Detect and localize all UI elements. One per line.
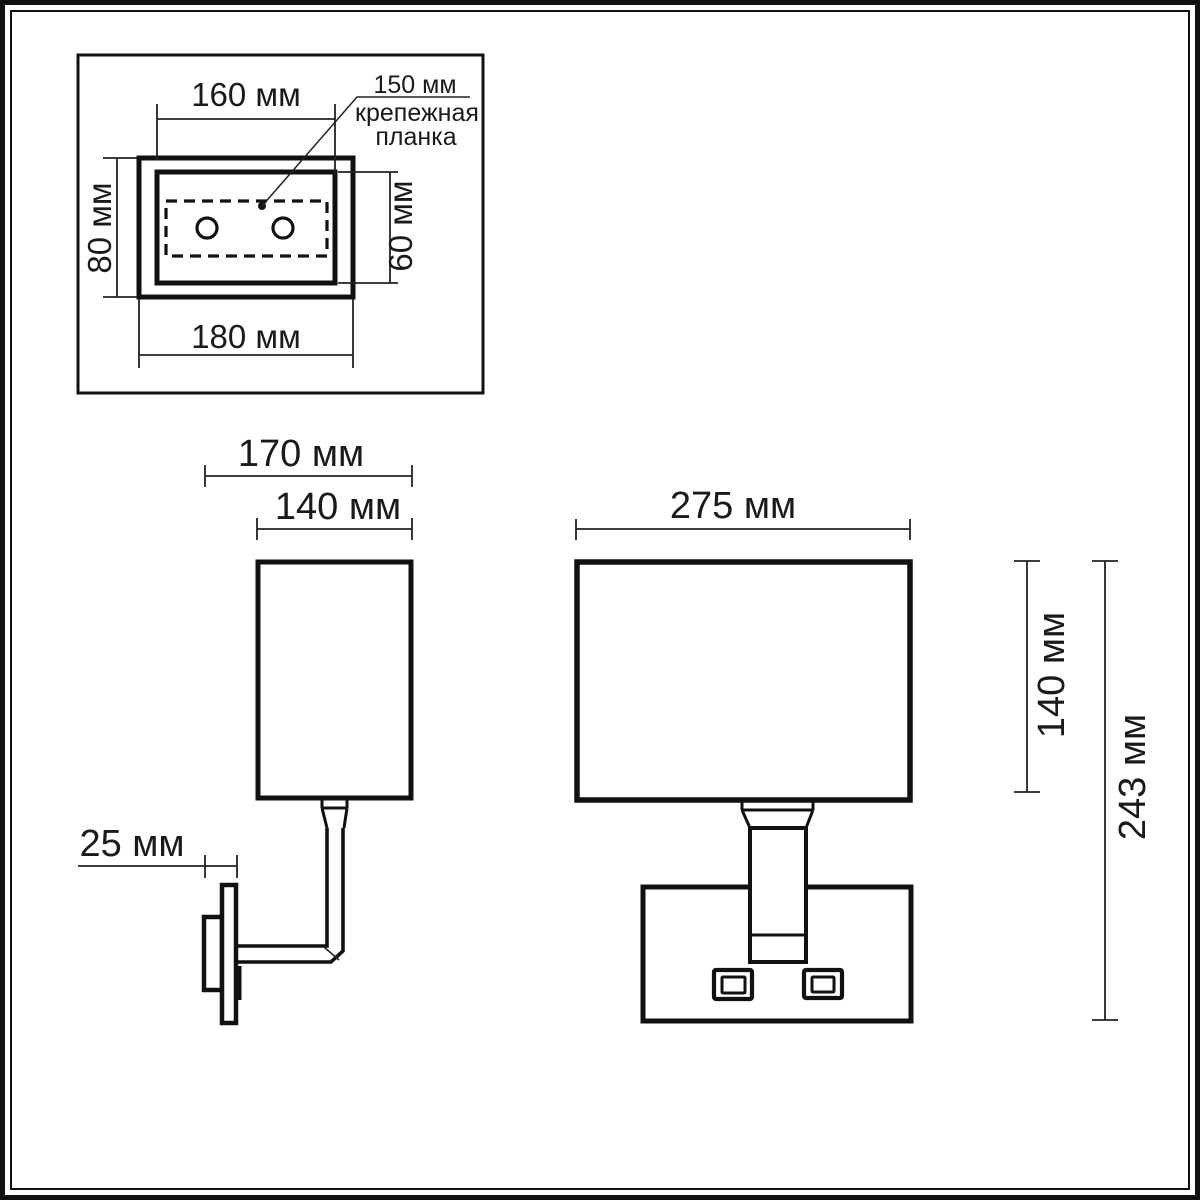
screw-hole-left: [197, 218, 217, 238]
dim-label-180: 180 мм: [191, 318, 301, 355]
backplate-inner-outline: [157, 172, 335, 283]
callout-value-label: 150 мм: [373, 71, 456, 99]
neck-side: [322, 800, 347, 828]
arm-tube-side: [236, 828, 343, 962]
lamp-arm-side: [236, 800, 347, 962]
dim-label-140-side: 140 мм: [275, 486, 401, 528]
dim-label-275: 275 мм: [670, 485, 796, 527]
neck-front: [742, 802, 813, 828]
dim-label-25: 25 мм: [79, 823, 184, 865]
technical-drawing-page: 150 мм крепежная планка 160 мм 180 мм 80…: [0, 0, 1200, 1200]
dim-label-80: 80 мм: [81, 182, 118, 273]
shade-side-outline: [258, 562, 411, 798]
wall-lamp-technical-drawing: 150 мм крепежная планка 160 мм 180 мм 80…: [0, 0, 1200, 1200]
dimension-160: [157, 104, 335, 174]
screw-hole-right: [273, 218, 293, 238]
wall-mount-block-side: [204, 917, 222, 990]
dim-label-160: 160 мм: [191, 76, 301, 113]
dim-label-140-front: 140 мм: [1031, 612, 1073, 738]
callout-text-line2: планка: [375, 123, 456, 151]
page-border: [3, 3, 1198, 1198]
side-view: 170 мм 140 мм 25 мм: [78, 433, 412, 1023]
switch-button-right: [804, 970, 842, 998]
shade-front-outline: [577, 562, 910, 800]
dim-label-243: 243 мм: [1112, 714, 1154, 840]
stem-front: [750, 828, 806, 962]
switch-side-profile: [236, 966, 242, 1000]
backplate-side: [222, 885, 236, 1023]
backplate-outer-outline: [139, 158, 353, 297]
dim-label-170: 170 мм: [238, 433, 364, 475]
front-view: 275 мм 140 мм 243 мм: [576, 485, 1154, 1021]
switch-button-left: [714, 970, 752, 999]
dim-label-60: 60 мм: [382, 180, 419, 271]
arm-miter-line: [324, 947, 339, 960]
detail-inset-mounting-plate: 150 мм крепежная планка 160 мм 180 мм 80…: [78, 55, 483, 393]
wall-plate-side: [204, 885, 242, 1023]
mounting-bar-dashed-outline: [166, 201, 327, 256]
